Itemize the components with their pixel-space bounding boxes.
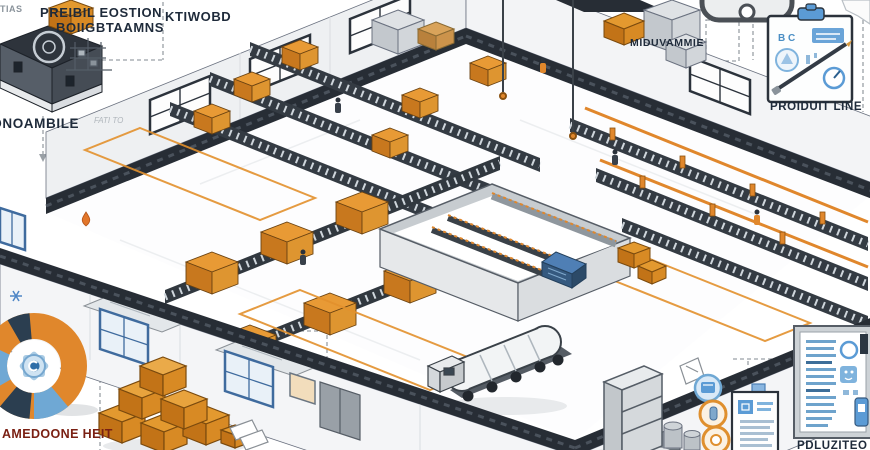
sketch-note: FATI TO [94, 116, 123, 125]
worker [335, 98, 341, 114]
cube-gray [372, 10, 424, 54]
factory-illustration: B C [0, 0, 870, 450]
left-edge-label: DNOAMBILE [0, 116, 79, 131]
connector-top-right-rect [706, 20, 739, 61]
panel-circle-icon [841, 342, 857, 358]
keyword-label: KTIWOBD [165, 9, 231, 24]
helipad-building [0, 26, 102, 112]
corner-label: TTIAS [0, 4, 23, 14]
factory-building [0, 0, 870, 450]
bottom-left-label: AMEDOONE HEIT [2, 427, 113, 441]
worker [300, 250, 306, 266]
worker [754, 210, 760, 226]
manufacture-label: MIDUVAMMIE [630, 37, 704, 49]
clipboard-icon: B C [768, 4, 852, 102]
title-line1: PREIBIL EOSTION [40, 5, 162, 20]
document-panel [794, 326, 870, 438]
worker [612, 150, 618, 166]
clipboard-letters: B C [778, 33, 795, 44]
bottom-right-label: PDLUZITEO D [797, 440, 870, 450]
title-line2: BOIIGBTAAMNS [56, 20, 164, 35]
document-sheet-icon [732, 384, 778, 450]
product-line-label: PROIDUIT LINE [770, 101, 862, 113]
worker [540, 58, 546, 74]
clipboard-badge [812, 28, 844, 43]
panel-avatar-icon [840, 366, 857, 383]
illustration-svg: B C [0, 0, 870, 450]
panel-dark-tab [860, 334, 868, 354]
shelf-cabinet [604, 366, 662, 450]
